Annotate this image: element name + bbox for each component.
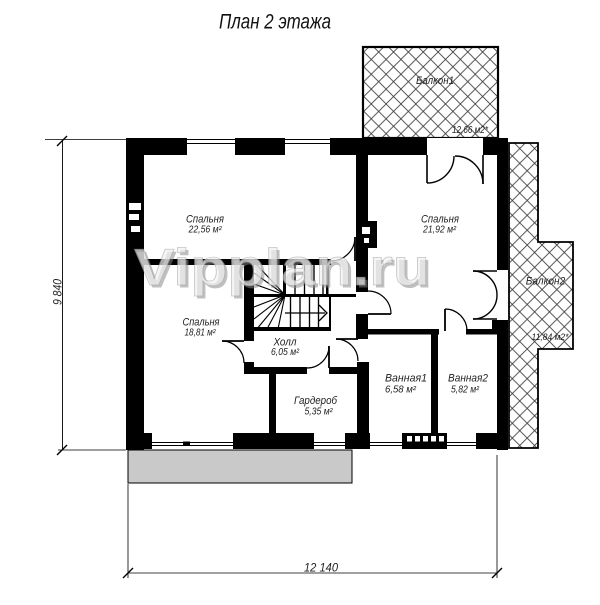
- svg-text:21,92 м²: 21,92 м²: [422, 225, 456, 236]
- svg-text:9 840: 9 840: [51, 279, 65, 305]
- svg-text:22,56 м²: 22,56 м²: [188, 225, 222, 236]
- svg-text:Балкон1: Балкон1: [416, 75, 454, 87]
- svg-text:5,82 м²: 5,82 м²: [451, 385, 480, 396]
- svg-text:Ванная1: Ванная1: [385, 373, 427, 385]
- svg-text:12,66 м2*: 12,66 м2*: [452, 125, 489, 136]
- svg-text:12 140: 12 140: [304, 561, 338, 575]
- svg-text:Vipplan.ru: Vipplan.ru: [134, 239, 430, 297]
- svg-text:Ванная2: Ванная2: [448, 373, 488, 385]
- svg-text:18,81 м²: 18,81 м²: [185, 328, 217, 339]
- svg-text:6,58 м²: 6,58 м²: [385, 385, 417, 396]
- svg-text:11,84 м2*: 11,84 м2*: [532, 332, 569, 343]
- svg-text:Гардероб: Гардероб: [294, 395, 338, 407]
- svg-text:План 2 этажа: План 2 этажа: [219, 10, 331, 34]
- svg-text:Балкон2: Балкон2: [526, 276, 566, 288]
- svg-text:6,05 м²: 6,05 м²: [271, 347, 300, 358]
- svg-text:5,35 м²: 5,35 м²: [305, 407, 334, 418]
